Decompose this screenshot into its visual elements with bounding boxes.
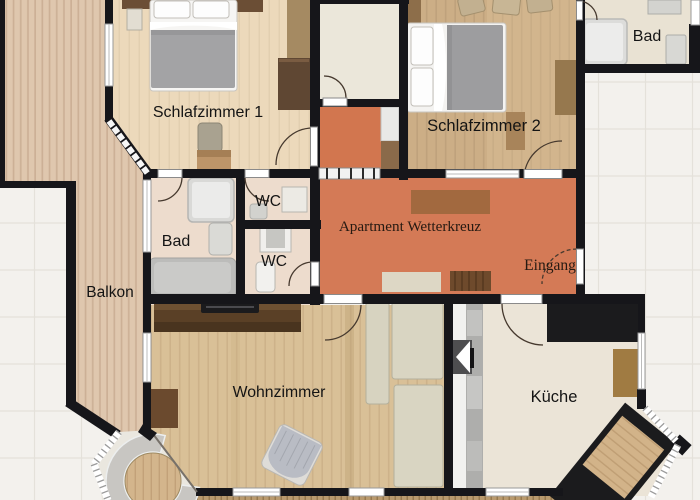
svg-text:Bad: Bad <box>633 28 661 45</box>
svg-text:Eingang: Eingang <box>524 257 576 274</box>
svg-text:Küche: Küche <box>531 388 578 406</box>
svg-text:Wohnzimmer: Wohnzimmer <box>233 384 326 401</box>
svg-text:Apartment Wetterkreuz: Apartment Wetterkreuz <box>339 218 482 235</box>
svg-text:Balkon: Balkon <box>86 284 133 301</box>
svg-text:Schlafzimmer 2: Schlafzimmer 2 <box>427 117 541 135</box>
svg-text:WC: WC <box>255 193 281 210</box>
svg-text:Schlafzimmer 1: Schlafzimmer 1 <box>153 104 263 121</box>
svg-text:Bad: Bad <box>162 233 190 250</box>
svg-text:WC: WC <box>261 253 287 270</box>
